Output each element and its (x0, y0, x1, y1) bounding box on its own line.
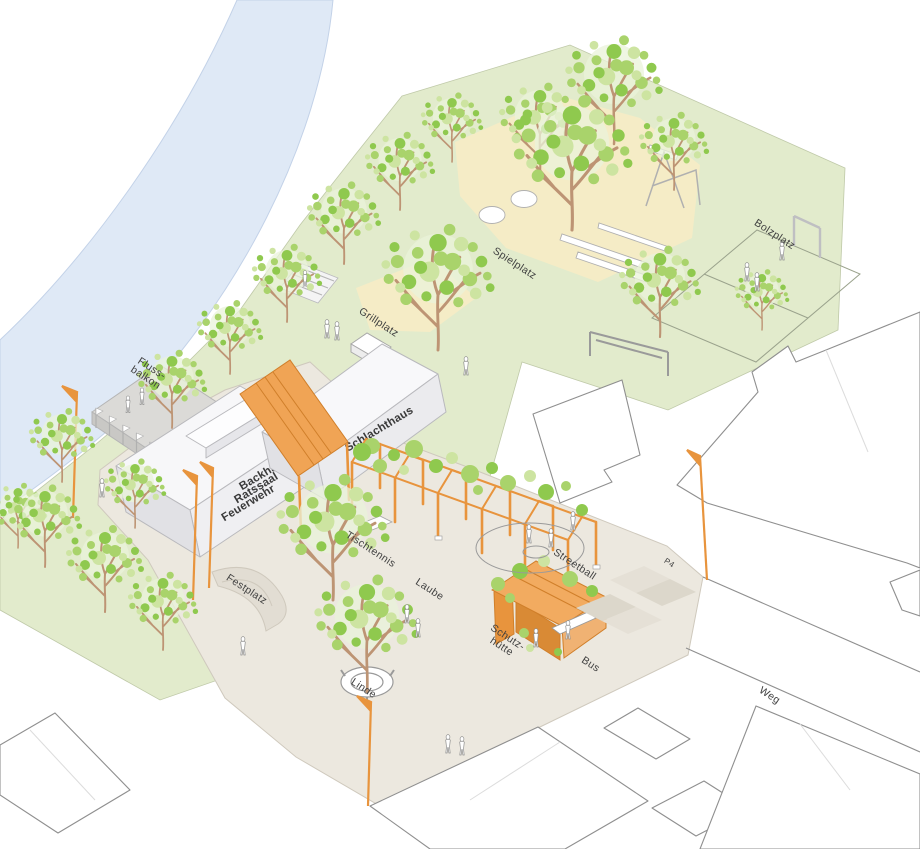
site-plan-svg: Backhaus Ratssaal Feuerwehr Schlachthaus (0, 0, 920, 849)
site-plan-illustration: Backhaus Ratssaal Feuerwehr Schlachthaus (0, 0, 920, 849)
label-weg: Weg (757, 684, 782, 706)
